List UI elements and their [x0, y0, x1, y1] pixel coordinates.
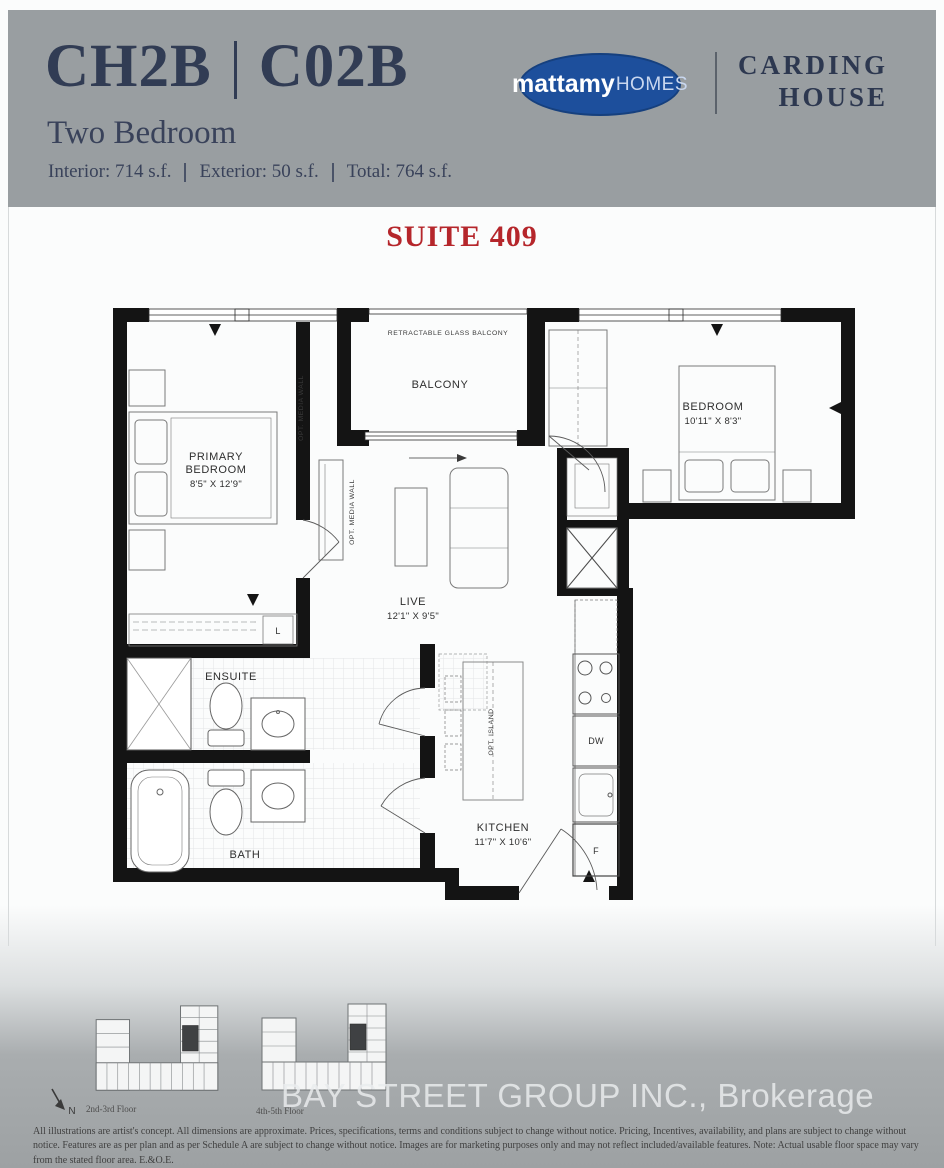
interior-area: Interior: 714 s.f.: [48, 161, 171, 183]
stool: [445, 744, 461, 770]
building-name-line2: HOUSE: [738, 82, 888, 114]
sofa: [450, 468, 508, 588]
toilet: [210, 683, 242, 729]
total-area: Total: 764 s.f.: [347, 161, 452, 183]
mattamy-homes-logo: mattamy HOMES: [519, 53, 681, 116]
north-arrow-icon: N: [44, 1086, 82, 1118]
coffee-table: [395, 488, 427, 566]
toilet: [210, 789, 242, 835]
floorplan-drawing: RETRACTABLE GLASS BALCONY BALCONY PRIMAR…: [113, 308, 855, 900]
logo-text-secondary: HOMES: [616, 74, 688, 96]
live-label: LIVE: [400, 596, 426, 608]
laundry-label: L: [275, 626, 280, 636]
nightstand: [129, 530, 165, 570]
primary-bedroom-label2: BEDROOM: [185, 464, 246, 476]
header-band: CH2B C02B Two Bedroom Interior: 714 s.f.…: [8, 10, 936, 207]
nightstand: [129, 370, 165, 406]
nightstand: [643, 470, 671, 502]
coat-closet: [567, 458, 617, 516]
plan-type: Two Bedroom: [47, 115, 236, 152]
retractable-glass-note: RETRACTABLE GLASS BALCONY: [388, 330, 508, 337]
pillow: [731, 460, 769, 492]
pillow: [135, 420, 167, 464]
pantry: [575, 600, 617, 654]
opt-media-wall-label: OPT. MEDIA WALL: [349, 479, 356, 545]
ensuite-label: ENSUITE: [205, 671, 257, 683]
opt-media-wall-label: OPT. MEDIA WALL: [298, 375, 305, 441]
brand-divider: [715, 52, 717, 114]
area-divider: [184, 163, 186, 182]
stool: [445, 710, 461, 736]
suite-number: SUITE 409: [0, 220, 924, 254]
bath-label: BATH: [230, 849, 261, 861]
vanity: [251, 770, 305, 822]
live-dims: 12'1" X 9'5": [387, 611, 439, 622]
bathtub: [131, 770, 189, 872]
bedroom-bed: [679, 366, 775, 500]
bedroom-label: BEDROOM: [682, 401, 743, 413]
floorplan-flyer: { "header": { "model": "CH2B", "unit": "…: [0, 0, 944, 1168]
opt-island-label: OPT. ISLAND: [488, 708, 495, 755]
media-console: [319, 460, 343, 560]
dishwasher-label: DW: [588, 736, 604, 746]
balcony-label: BALCONY: [412, 379, 469, 391]
primary-bedroom-dims: 8'5" X 12'9": [190, 479, 242, 490]
area-summary: Interior: 714 s.f. Exterior: 50 s.f. Tot…: [48, 161, 452, 183]
kitchen-dims: 11'7" X 10'6": [475, 837, 532, 848]
unit-code: C02B: [259, 32, 409, 102]
exterior-area: Exterior: 50 s.f.: [199, 161, 318, 183]
model-code: CH2B: [45, 32, 212, 102]
building-name: CARDING HOUSE: [738, 50, 888, 114]
logo-text-primary: mattamy: [512, 70, 615, 99]
primary-bedroom-label: PRIMARY: [189, 451, 243, 463]
title-divider: [234, 41, 237, 99]
keyplan-caption-1: 2nd-3rd Floor: [86, 1104, 136, 1114]
kitchen-label: KITCHEN: [477, 822, 529, 834]
plan-title: CH2B C02B: [45, 32, 408, 102]
nightstand: [783, 470, 811, 502]
brokerage-watermark: BAY STREET GROUP INC., Brokerage: [281, 1077, 874, 1115]
area-divider: [332, 163, 334, 182]
pillow: [685, 460, 723, 492]
keyplan-2nd-3rd: [82, 1000, 230, 1102]
pillow: [135, 472, 167, 516]
vanity: [251, 698, 305, 750]
bedroom-dims: 10'11" X 8'3": [685, 416, 742, 427]
disclaimer-text: All illustrations are artist's concept. …: [33, 1125, 921, 1168]
north-label: N: [68, 1106, 75, 1117]
building-name-line1: CARDING: [738, 50, 888, 82]
fridge-label: F: [593, 846, 599, 856]
